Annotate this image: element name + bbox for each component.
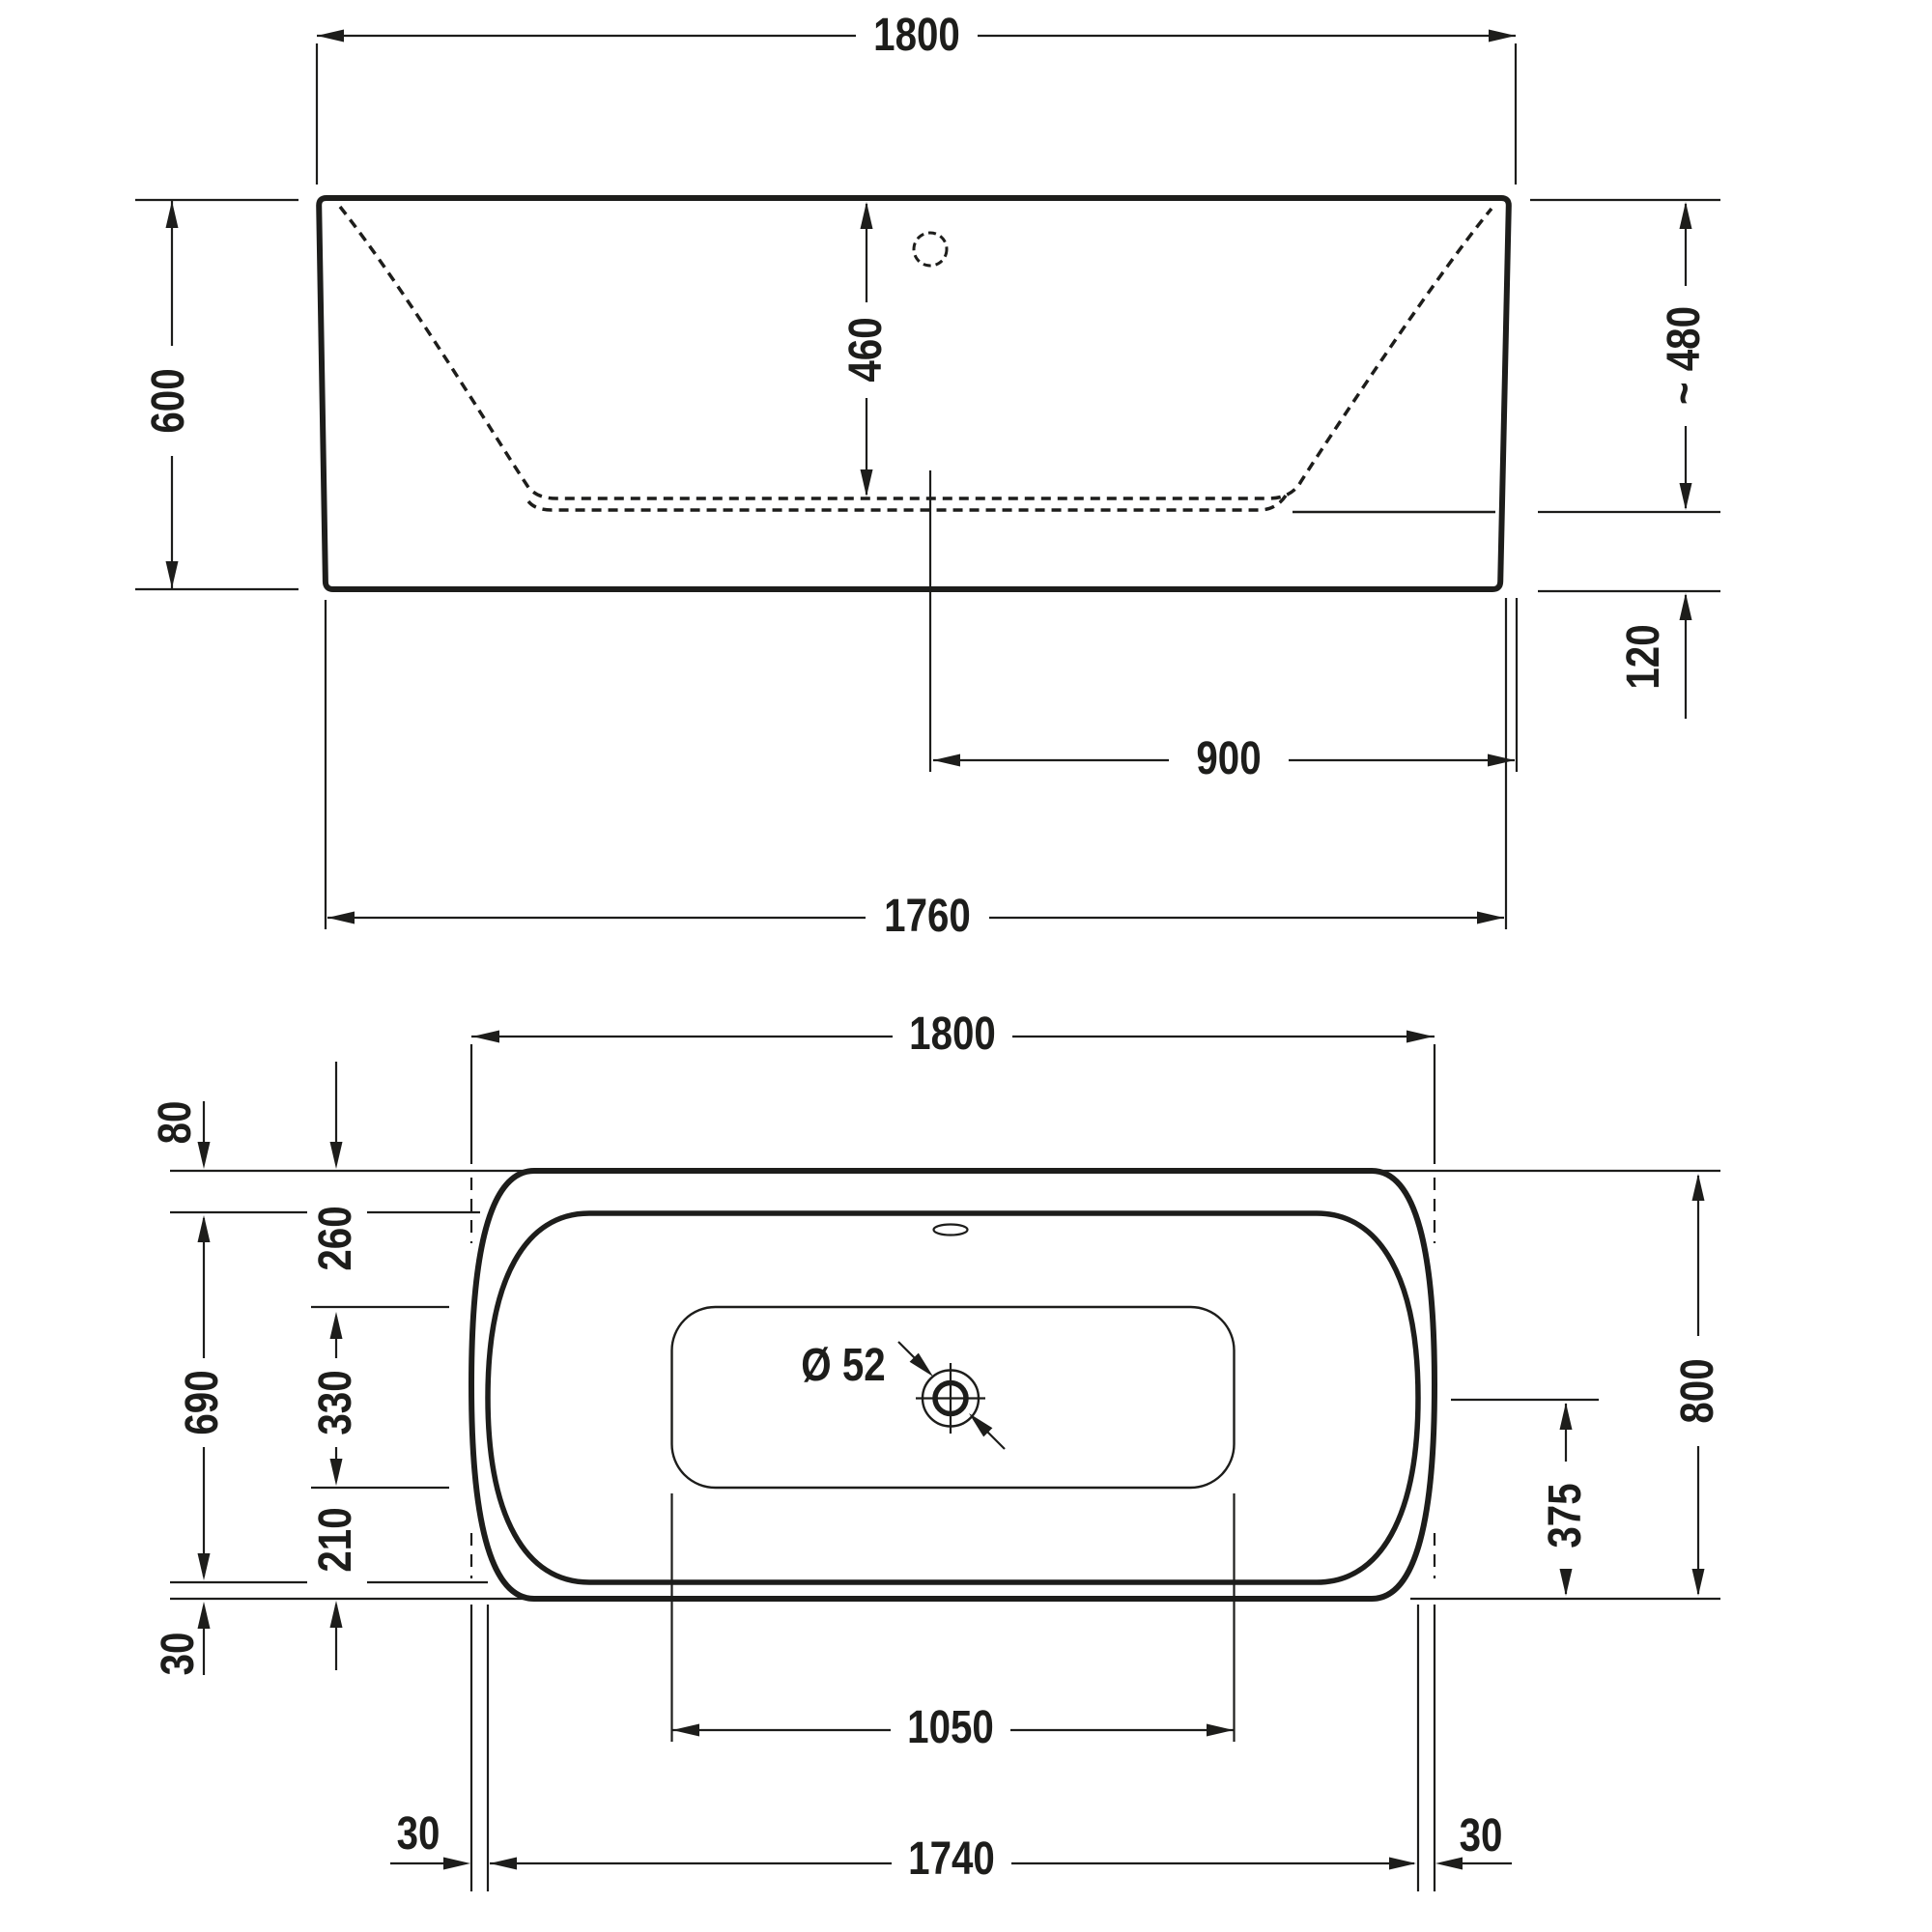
dim-plan-rim-opening-width: 690 [180, 1370, 226, 1435]
dim-plan-rim-opening-length: 1740 [908, 1836, 995, 1883]
technical-drawing-sheet: 1800 600 460 ~ 480 120 900 1760 1800 80 … [0, 0, 1932, 1932]
elevation-tub-outline [319, 198, 1509, 589]
elevation-view [319, 198, 1509, 772]
dim-plan-overall-width: 800 [1675, 1358, 1721, 1423]
dim-elevation-overall-height: 600 [146, 368, 192, 433]
dim-plan-floor-width: 330 [313, 1370, 359, 1435]
dim-plan-top-to-floor: 260 [313, 1206, 359, 1270]
dim-plan-floor-length: 1050 [907, 1705, 994, 1751]
plan-view [471, 1171, 1435, 1599]
dim-elevation-height-right: ~ 480 [1662, 306, 1708, 405]
dim-plan-rim-inset-right: 30 [1460, 1813, 1503, 1860]
dim-plan-overall-length: 1800 [909, 1011, 996, 1058]
dim-plan-rim-inset-left: 30 [397, 1811, 440, 1858]
dim-elevation-center-to-edge: 900 [1196, 736, 1261, 782]
dim-plan-rim-top-offset: 80 [153, 1101, 199, 1145]
drawing-linework [0, 0, 1932, 1932]
dim-plan-drain-diameter: Ø 52 [801, 1343, 885, 1389]
dim-elevation-base-width: 1760 [884, 894, 971, 940]
dim-elevation-depth: 460 [843, 317, 890, 382]
dim-plan-floor-to-bottom: 210 [313, 1507, 359, 1572]
dim-plan-drain-to-bottom: 375 [1543, 1483, 1589, 1548]
dim-elevation-overall-width: 1800 [873, 13, 960, 59]
dim-plan-rim-bottom-offset: 30 [156, 1633, 202, 1676]
dim-elevation-base-height: 120 [1621, 624, 1667, 689]
